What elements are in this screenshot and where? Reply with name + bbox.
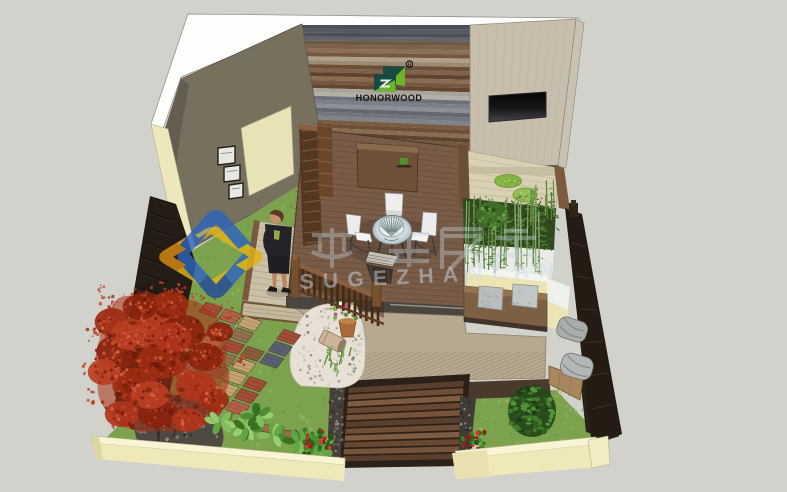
svg-text:HONORWOOD: HONORWOOD (356, 93, 423, 103)
svg-text:R: R (408, 62, 412, 68)
